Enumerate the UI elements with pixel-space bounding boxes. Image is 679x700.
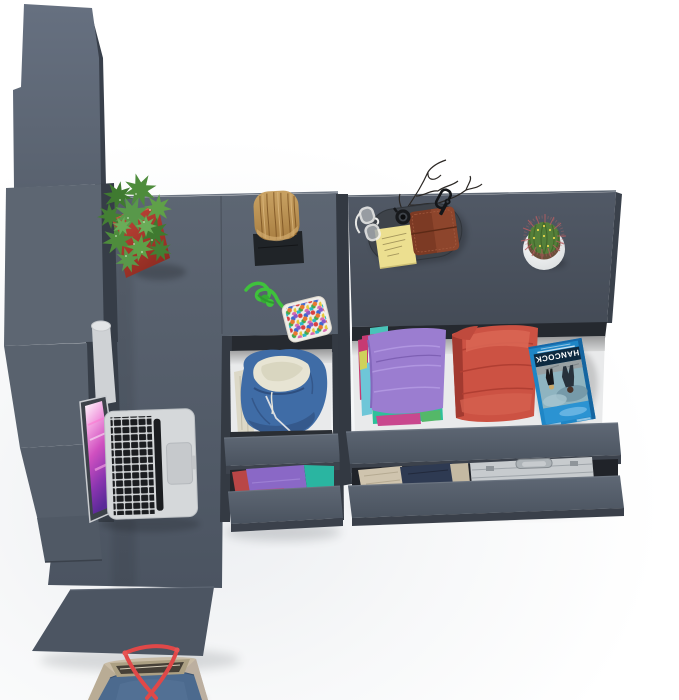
render-canvas: HANCOCK <box>0 0 679 700</box>
blue-hoodie <box>241 349 327 436</box>
sticky-note <box>375 225 417 269</box>
pedestal-drawer2-front <box>228 486 343 524</box>
laptop-keyboard[interactable] <box>110 416 154 515</box>
wardrobe-panel-mid <box>4 184 104 346</box>
wooden-stool <box>253 190 304 266</box>
pedestal-drawer1-front <box>224 434 340 466</box>
laptop-trackpad[interactable] <box>166 443 192 485</box>
leather-wallet <box>408 206 460 256</box>
laptop-lid-corner <box>92 321 111 331</box>
pedestal-drawers <box>220 334 344 532</box>
wardrobe-base-box <box>37 515 102 562</box>
wardrobe-panel-top <box>13 4 101 188</box>
lid-notch <box>192 455 196 469</box>
wardrobe-panel-lower <box>4 343 90 448</box>
folded-purple-shirts <box>358 326 446 426</box>
desk-return <box>32 587 214 656</box>
folded-coral-towels <box>452 325 538 422</box>
scene-render: HANCOCK <box>0 0 679 700</box>
return-panel <box>32 587 214 656</box>
